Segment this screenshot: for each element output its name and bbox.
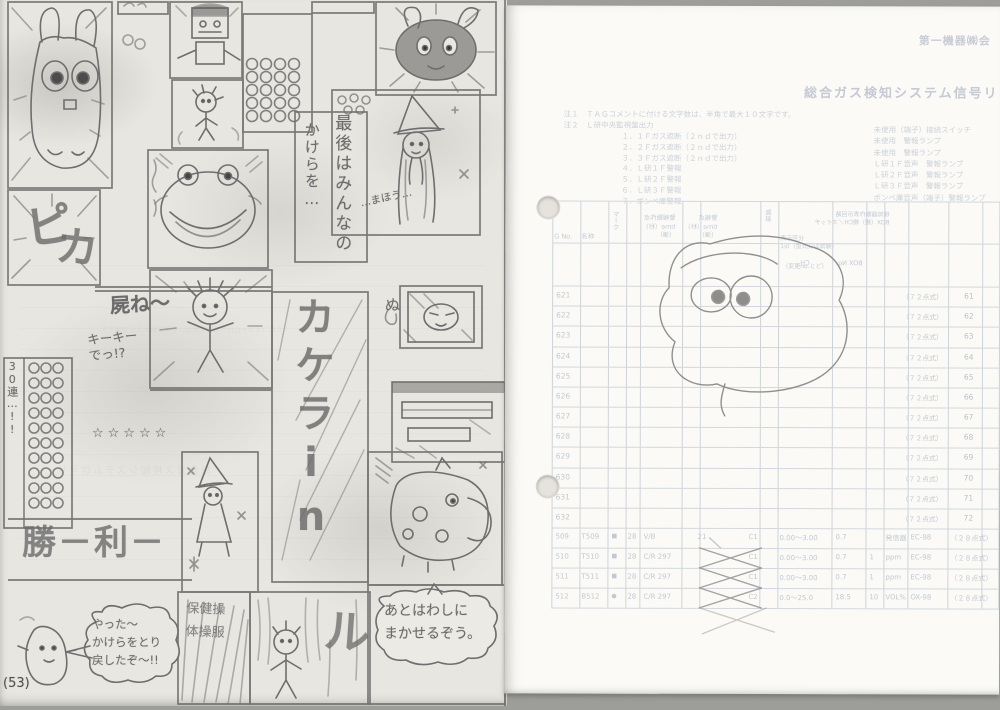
table-cell-gno: 629: [556, 451, 570, 460]
handwriting-shine: 屍ね〜: [109, 290, 170, 318]
small-ghost-drawing: [18, 617, 76, 685]
table-vline: [579, 201, 581, 608]
ghost-character-drawing: [12, 8, 108, 180]
table-cell-g: 510: [555, 552, 568, 560]
handwriting-saigo-line2: かけらを…: [302, 122, 321, 267]
table-cell-gno: 630: [556, 472, 570, 481]
table-cell-tag: T511: [581, 573, 599, 581]
table-header-label: 表示区分 1st（型式又は試験）: [780, 235, 837, 251]
note2-text: Ｌ研中央監視盤出力: [586, 120, 654, 129]
table-hline: [552, 346, 1000, 348]
table-cell-note: （７２点式）: [902, 372, 943, 382]
table-cell-code: C/R 297: [643, 593, 671, 601]
table-cell-n: 28: [627, 553, 636, 561]
table-cell-ch: 63: [964, 332, 974, 341]
terminal-list-item: Ｌ研２Ｆ音声 警報ランプ: [873, 169, 998, 181]
table-cell-unit: VOL%: [885, 593, 906, 601]
table-hline: [552, 242, 1000, 244]
table-cell-note: （７２点式）: [902, 412, 943, 422]
table-cell-ch: 65: [964, 373, 974, 382]
table-cell-mult: 1: [869, 573, 873, 581]
elephant-creature-drawing: [376, 458, 491, 572]
handwriting-ru: ル: [322, 602, 372, 663]
terminal-list-item: 未使用 警報ランプ: [874, 136, 999, 148]
note-list-item: ６．Ｌ研３Ｆ警報: [621, 186, 795, 197]
table-header-label: 遅延: [762, 209, 771, 222]
page-number: (53): [3, 676, 30, 692]
table-cell-det: EC-98: [910, 573, 931, 581]
table-cell-ch: 71: [964, 494, 974, 503]
note1-label: 注１: [564, 110, 579, 119]
table-hline: [552, 527, 1000, 529]
table-hline: [551, 587, 999, 589]
table-cell-gno: 627: [556, 411, 570, 420]
table-vline: [865, 201, 867, 608]
table-cell-ch: 64: [964, 353, 974, 362]
table-header-label: 検知器動作表示回路 BOX（親）親CH／スイッチ: [814, 211, 889, 227]
table-vline: [947, 202, 949, 609]
table-cell-det: OX-98: [910, 593, 931, 601]
table-cell-gno: 626: [556, 391, 570, 400]
table-cell-mark: ■: [611, 553, 617, 560]
table-cell-unit: ppm: [885, 553, 901, 561]
table-vline: [699, 201, 701, 608]
handwriting-kakera-title: カケラin: [286, 296, 336, 588]
table-cell-ch: 70: [964, 474, 974, 483]
frog-character-drawing: [152, 154, 262, 248]
table-vline: [639, 201, 641, 608]
handwriting-pika-2: カ: [53, 220, 100, 277]
table-cell-tag: T510: [581, 553, 599, 561]
table-vline: [883, 201, 885, 608]
table-cell-code: C/R 297: [643, 553, 671, 561]
table-cell-set: 18.5: [835, 593, 851, 601]
table-header-label: CH: [800, 259, 809, 268]
table-cell-ch: 61: [964, 292, 974, 301]
table-header-label: BOX No.: [836, 259, 862, 268]
signal-table: G No.名称マーク警報動作点 time（秒） （値）警報点 time（秒） （…: [551, 200, 1000, 608]
table-hline: [552, 386, 1000, 388]
handwriting-saigo-line1: 最後はみんなの: [330, 114, 351, 279]
table-header-label: 警報動作点 time（秒） （値）: [642, 215, 675, 241]
table-cell-g: 512: [555, 592, 568, 600]
table-cell-mult: 1: [869, 553, 873, 561]
table-cell-code: C/R 297: [643, 573, 671, 581]
small-character-drawing: [178, 85, 238, 144]
table-hline: [552, 305, 1000, 307]
table-cell-gno: 628: [556, 431, 570, 440]
table-cell-set: 0.7: [835, 573, 846, 581]
table-cell-ch: 67: [964, 413, 974, 422]
table-cell-mark: ■: [611, 573, 617, 580]
table-cell-gno: 625: [556, 371, 570, 380]
table-cell-note: （７２点式）: [902, 432, 943, 442]
signal-list-page: 第一機器㈱会 総合ガス検知システム信号リ 注１ ＴＡＧコメントに付ける文字数は、…: [504, 5, 1000, 694]
witch-character-drawing: [338, 94, 468, 224]
table-cell-det: EC-98: [910, 533, 931, 541]
table-hline: [552, 426, 1000, 428]
table-cell-note: （２８点式）: [950, 554, 992, 564]
table-cell-note: （７２点式）: [902, 291, 943, 301]
table-header-label: 名称: [581, 233, 594, 242]
handwriting-stars: ☆☆☆☆☆: [92, 426, 170, 442]
table-cell-g: 509: [556, 532, 569, 540]
table-cell-gno: 631: [556, 492, 570, 501]
table-vline: [625, 201, 627, 608]
table-cell-n: 28: [627, 573, 636, 581]
handwriting-yatta-bubble: やった〜 かけらをとり 戻したぞ〜!!: [92, 616, 161, 669]
table-cell-mark: ●: [611, 593, 616, 600]
spiky-creature-drawing: [380, 4, 494, 92]
terminal-list-item: Ｌ研３Ｆ音声 警報ランプ: [873, 181, 998, 193]
table-hline: [551, 547, 999, 549]
table-cell-gno: 624: [556, 351, 570, 360]
manga-page: 総合ガス検知システム信号リ ＴＡＧコメントに付ける文字数は、半角で最大１０文字で…: [0, 0, 507, 706]
table-cell-unit: ppm: [885, 573, 901, 581]
table-hline: [552, 467, 1000, 469]
table-cell-gno: 623: [556, 330, 570, 339]
table-vline: [681, 201, 683, 608]
handwriting-hoken: 保健操 体操服: [185, 597, 226, 645]
table-cell-note: （７２点式）: [902, 473, 943, 483]
table-hline: [552, 200, 1000, 202]
note-list-item: ２．２Ｆガス遮断（２ｎｄで出力）: [622, 142, 796, 153]
table-cell-range: 0.00〜3.00: [779, 533, 817, 543]
table-vline: [831, 201, 833, 608]
balls-grid-drawing: [24, 358, 63, 528]
table-cell-set: 0.7: [835, 533, 846, 541]
table-cell-gno: 632: [556, 512, 570, 521]
table-cell-ch: 62: [964, 312, 974, 321]
table-cell-gno: 621: [556, 290, 570, 299]
table-header-label: マーク: [610, 211, 619, 231]
dango-balls-drawing: [247, 59, 300, 122]
table-cell-note: （７２点式）: [902, 392, 943, 402]
handwriting-kiki: キーキー でっ!?: [87, 328, 140, 363]
table-cell-g: 511: [555, 572, 568, 580]
table-cell-range: 0.00〜3.00: [779, 553, 817, 563]
table-cell-gno: 622: [556, 310, 570, 319]
company-stamp-text: 第一機器㈱会: [919, 32, 991, 48]
table-cell-note: （７２点式）: [902, 452, 943, 462]
table-cell-n: 28: [627, 593, 636, 601]
output-terminal-list: 未使用（端子）接続スイッチ 未使用 警報ランプ 未使用 警報ランプ Ｌ研１Ｆ音声…: [873, 124, 998, 203]
hole-punch-bottom: [537, 475, 559, 497]
note1-text: ＴＡＧコメントに付ける文字数は、半角で最大１０文字です。: [586, 110, 795, 120]
table-cell-note: （７２点式）: [902, 352, 943, 362]
table-vline: [907, 201, 909, 608]
table-vline: [607, 201, 609, 608]
table-header-label: 警報点 time（秒） （値）: [684, 215, 717, 241]
table-hline: [552, 446, 1000, 448]
note-list-item: ４．Ｌ研１Ｆ警報: [621, 164, 795, 175]
table-cell-note: （７２点式）: [902, 331, 943, 341]
table-cell-n: 28: [628, 533, 637, 541]
table-cell-det: EC-98: [910, 553, 931, 561]
table-vline: [981, 202, 983, 609]
table-cell-note: （２８点式）: [950, 534, 992, 544]
table-cell-note: （７２点式）: [902, 493, 943, 503]
small-witch-drawing: [188, 458, 245, 571]
table-hline: [552, 325, 1000, 327]
hole-punch-top: [537, 196, 559, 218]
table-cell-range: 0.00〜3.00: [779, 573, 817, 583]
table-hline: [551, 607, 999, 609]
table-cell-mark: ■: [612, 533, 618, 540]
table-header-label: G No.: [554, 232, 572, 241]
table-cell-note: （７２点式）: [902, 311, 943, 321]
note2-label: 注２: [564, 120, 579, 129]
note-list-item: １．１Ｆガス遮断（２ｎｄで出力）: [622, 131, 796, 142]
note2-list: １．１Ｆガス遮断（２ｎｄで出力） ２．２Ｆガス遮断（２ｎｄで出力） ３．３Ｆガス…: [621, 131, 795, 208]
terminal-list-item: 未使用 警報ランプ: [874, 147, 999, 159]
table-cell-box: C1: [748, 573, 757, 581]
document-title: 総合ガス検知システム信号リ: [804, 82, 999, 102]
table-vline: [777, 201, 779, 608]
table-cell-unit: 発信器: [885, 533, 906, 543]
table-hline: [552, 406, 1000, 408]
handwriting-renpatsu: 30連…!!: [5, 360, 19, 525]
table-cell-ch: 66: [964, 393, 974, 402]
table-cell-code: V/B: [644, 533, 656, 541]
table-vline: [551, 200, 553, 607]
table-cell-note: （２８点式）: [950, 574, 992, 584]
table-cell-ch: 72: [964, 514, 974, 523]
table-hline: [552, 285, 1000, 287]
handwriting-nu: ぬ: [385, 296, 400, 315]
table-cell-tag: T509: [582, 533, 600, 541]
terminal-list-item: 未使用（端子）接続スイッチ: [874, 124, 999, 136]
note-list-item: ５．Ｌ研２Ｆ警報: [621, 175, 795, 186]
table-cell-d1: 21: [698, 533, 707, 541]
table-cell-ch: 69: [964, 453, 974, 462]
table-cell-set: 0.7: [835, 553, 846, 561]
table-cell-mult: 10: [869, 593, 878, 601]
table-vline: [759, 201, 761, 608]
table-cell-box: C1: [749, 533, 758, 541]
table-hline: [552, 507, 1000, 509]
table-hline: [552, 487, 1000, 489]
table-cell-range: 0.0〜25.0: [779, 593, 813, 603]
sign-panel-drawing: [392, 382, 505, 458]
scanned-spread: 総合ガス検知システム信号リ ＴＡＧコメントに付ける文字数は、半角で最大１０文字で…: [0, 0, 1000, 710]
notes-block: 注１ ＴＡＧコメントに付ける文字数は、半角で最大１０文字です。 注２ Ｌ研中央監…: [563, 110, 795, 208]
table-cell-note: （７２点式）: [902, 513, 943, 523]
table-hline: [552, 366, 1000, 368]
table-hline: [551, 567, 999, 569]
table-cell-box: C2: [748, 593, 757, 601]
table-cell-box: C1: [748, 553, 757, 561]
table-cell-note: （２８点式）: [950, 594, 992, 604]
table-cell-ch: 68: [964, 433, 974, 442]
table-cell-tag: B512: [581, 593, 599, 601]
robot-character-drawing: [123, 3, 240, 64]
handwriting-makaseru-bubble: あとはわしに まかせるぞう。: [384, 600, 481, 646]
handwriting-shouri: 勝－利－: [22, 522, 166, 565]
terminal-list-item: Ｌ研１Ｆ音声 警報ランプ: [873, 158, 998, 170]
